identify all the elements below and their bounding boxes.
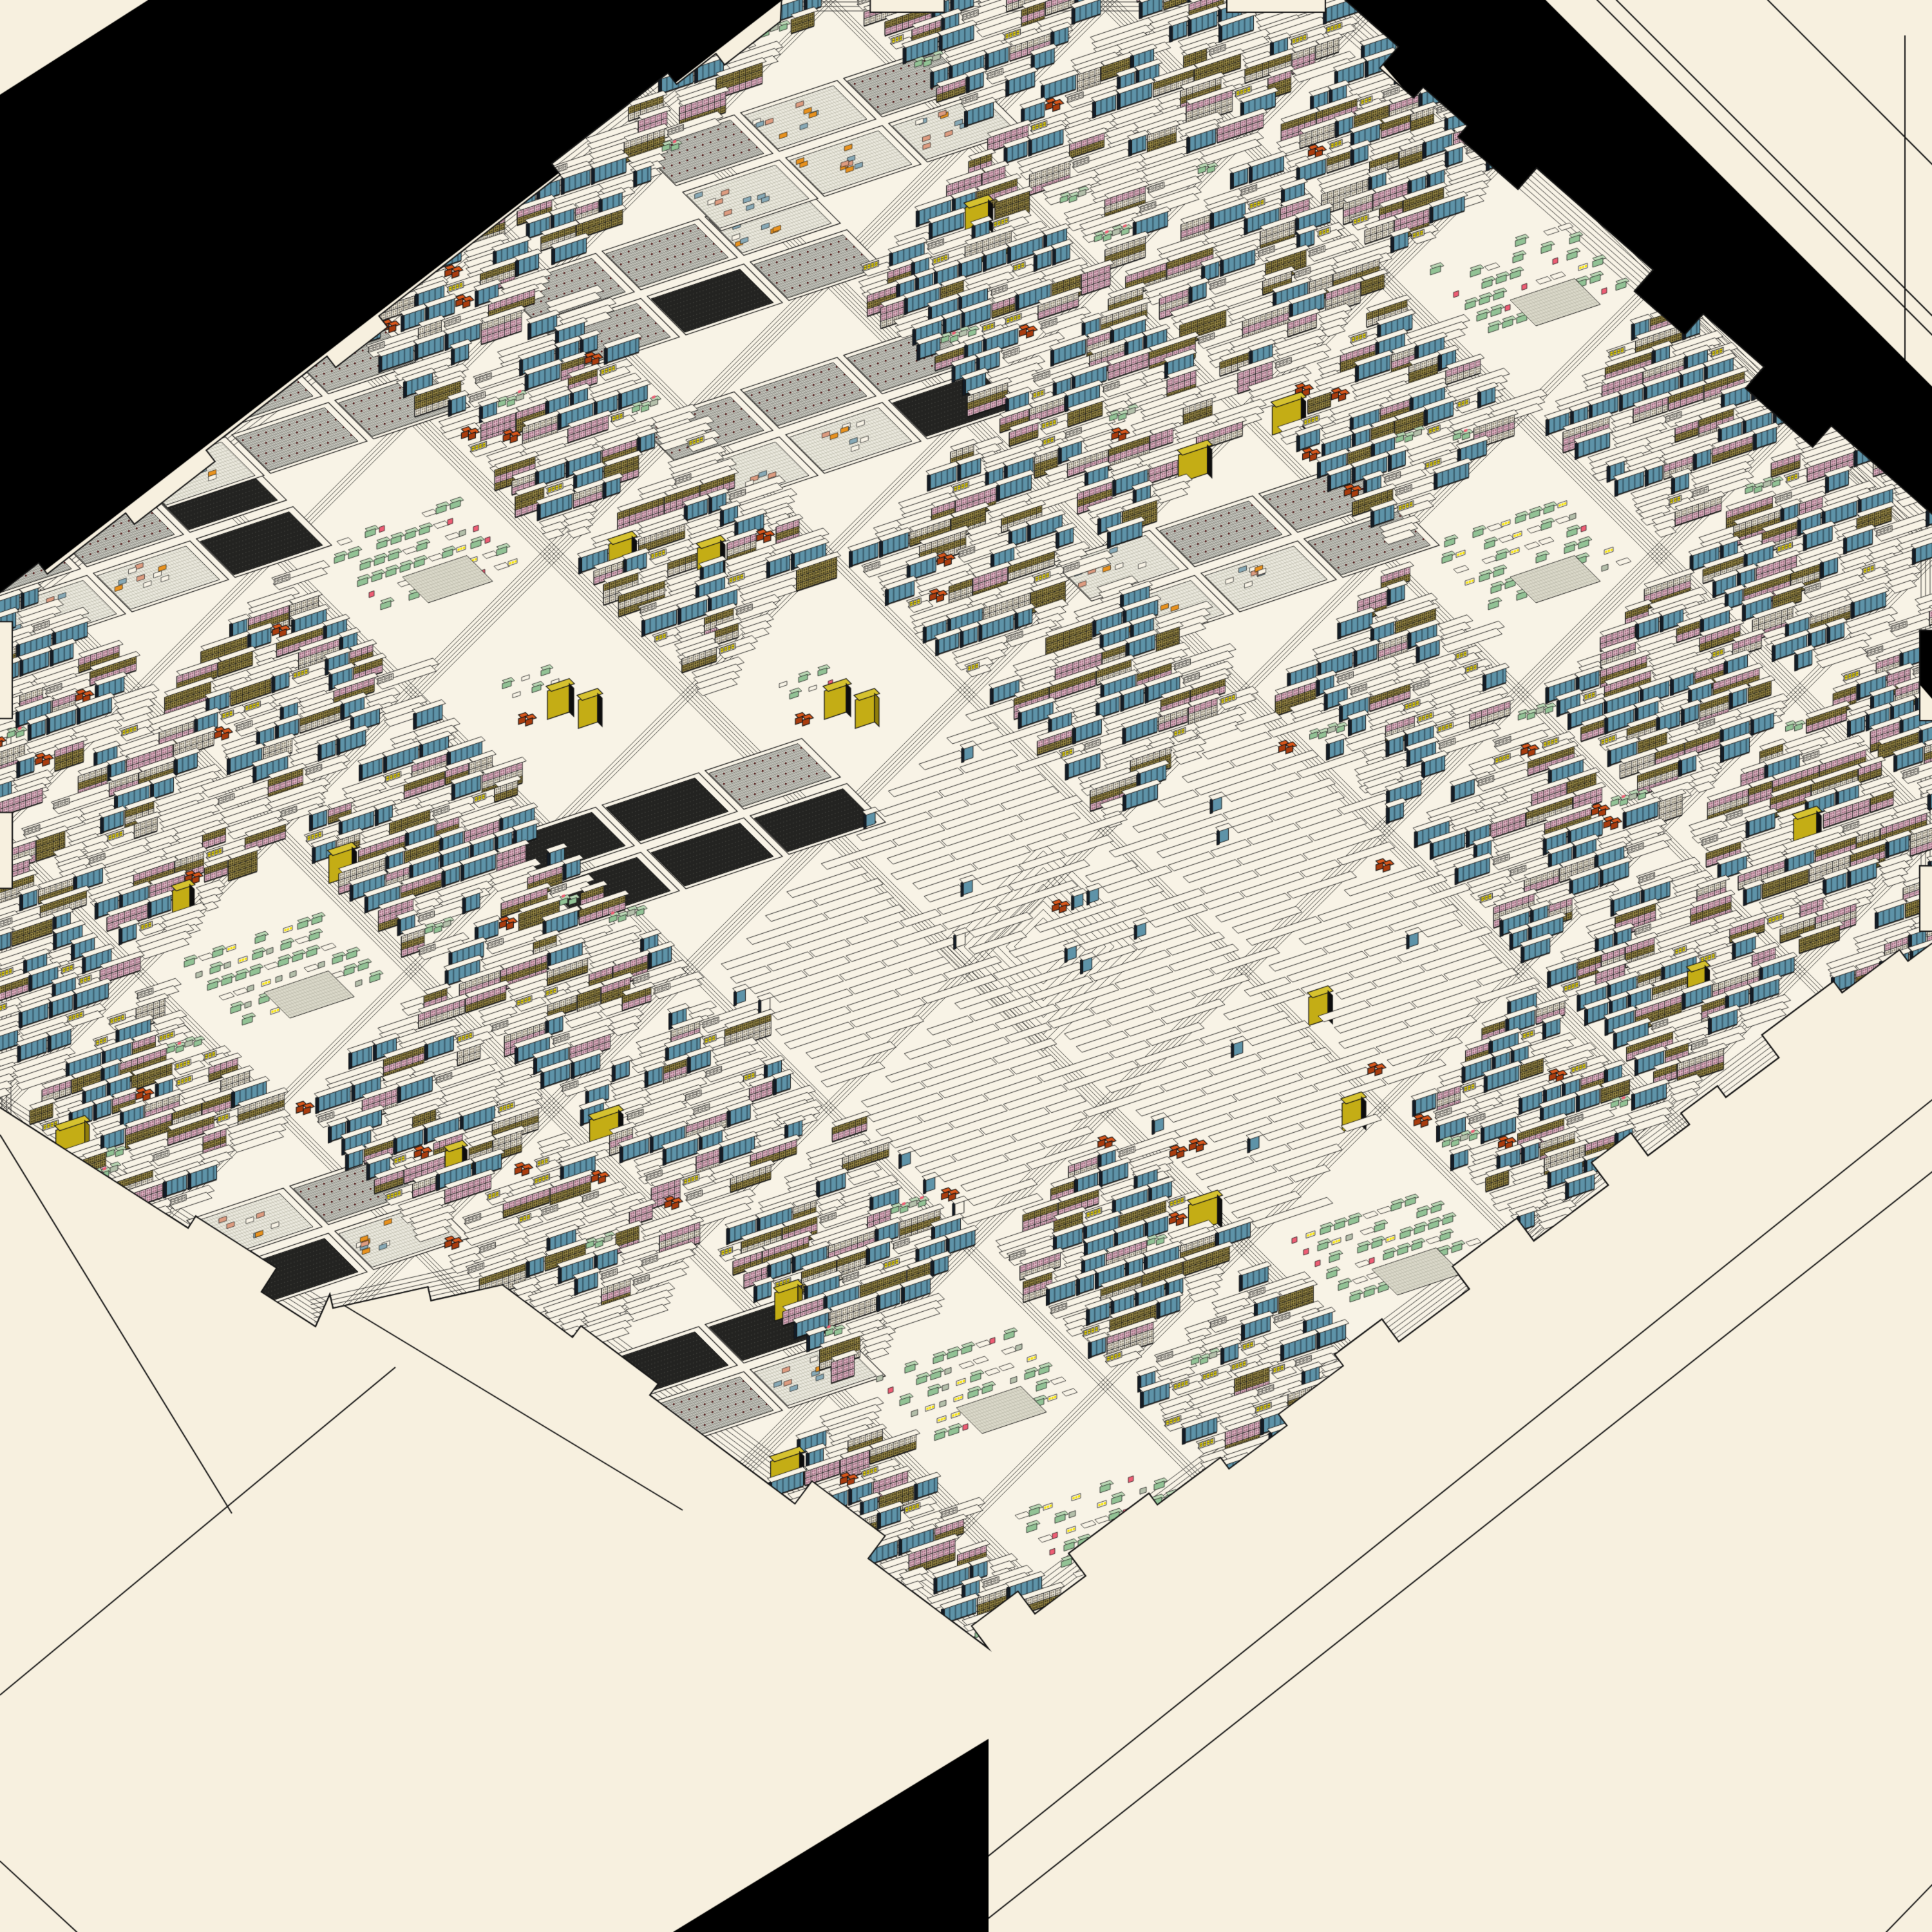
generative-city-canvas (0, 0, 1932, 1932)
artwork-stage (0, 0, 1932, 1932)
